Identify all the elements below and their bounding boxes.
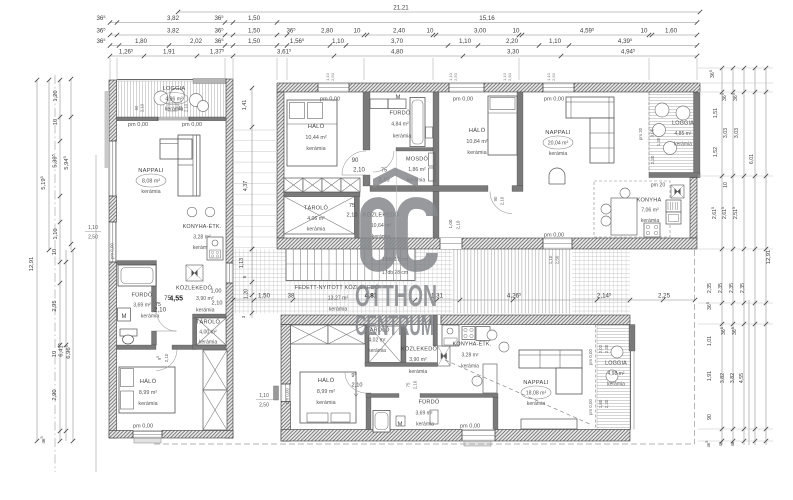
- svg-text:M: M: [398, 422, 403, 428]
- svg-text:pm 0,00: pm 0,00: [544, 97, 564, 103]
- svg-text:10,84 m²: 10,84 m²: [466, 139, 487, 145]
- svg-text:kerámia: kerámia: [138, 401, 157, 407]
- svg-text:1,91: 1,91: [163, 49, 176, 56]
- svg-text:pm 0,00: pm 0,00: [588, 349, 593, 365]
- svg-text:OTTHON: OTTHON: [355, 278, 437, 313]
- svg-text:2,30: 2,30: [604, 399, 609, 408]
- svg-text:2,10: 2,10: [347, 213, 358, 219]
- svg-text:HÁLÓ: HÁLÓ: [469, 127, 486, 134]
- svg-text:1,41: 1,41: [242, 100, 248, 111]
- svg-text:10: 10: [641, 28, 648, 35]
- svg-text:2,80: 2,80: [321, 28, 334, 35]
- svg-text:pm 0,00: pm 0,00: [133, 424, 153, 430]
- svg-text:2,50: 2,50: [88, 235, 98, 241]
- svg-text:3,69 m²: 3,69 m²: [133, 303, 151, 309]
- svg-text:2,95: 2,95: [52, 300, 58, 311]
- svg-text:2,35: 2,35: [740, 283, 746, 293]
- svg-text:1,80: 1,80: [135, 38, 148, 45]
- svg-text:1,51: 1,51: [713, 108, 719, 118]
- svg-text:1,00: 1,00: [211, 289, 222, 295]
- svg-text:LOGGIA: LOGGIA: [163, 86, 186, 92]
- svg-text:1,30: 1,30: [656, 137, 661, 146]
- svg-text:KONYHA-ÉTK.: KONYHA-ÉTK.: [183, 223, 222, 230]
- svg-text:4,55: 4,55: [169, 296, 183, 303]
- svg-text:kerámia: kerámia: [196, 308, 215, 314]
- svg-text:pm 20: pm 20: [638, 127, 643, 140]
- svg-text:3,82: 3,82: [167, 28, 180, 35]
- svg-text:1,265: 1,265: [119, 48, 133, 55]
- svg-text:KÖZLEKEDŐ: KÖZLEKEDŐ: [401, 346, 437, 353]
- svg-text:kerámia: kerámia: [461, 364, 479, 370]
- svg-text:NAPPALI: NAPPALI: [545, 130, 571, 136]
- svg-text:3,00: 3,00: [474, 28, 487, 35]
- svg-text:4,06 m²: 4,06 m²: [307, 216, 325, 222]
- svg-text:kerámia: kerámia: [307, 227, 326, 233]
- svg-text:kerámia: kerámia: [607, 382, 625, 388]
- svg-text:8,99 m²: 8,99 m²: [317, 389, 335, 395]
- svg-text:1,80: 1,80: [598, 399, 603, 408]
- svg-text:2,10: 2,10: [500, 196, 505, 205]
- svg-text:kerámia: kerámia: [416, 422, 434, 428]
- svg-text:2,10: 2,10: [456, 220, 461, 229]
- svg-text:1,50: 1,50: [248, 15, 261, 22]
- svg-text:kerámia: kerámia: [199, 340, 218, 346]
- svg-text:90: 90: [707, 414, 713, 420]
- svg-text:3,03: 3,03: [723, 128, 729, 138]
- svg-text:3,82: 3,82: [730, 373, 736, 383]
- svg-text:pm 0,00: pm 0,00: [588, 399, 593, 415]
- svg-text:12,91: 12,91: [766, 250, 772, 265]
- svg-text:3,615: 3,615: [277, 48, 291, 55]
- svg-text:HÁLÓ: HÁLÓ: [318, 377, 335, 384]
- svg-text:17db 28 cm: 17db 28 cm: [382, 270, 408, 276]
- svg-text:75: 75: [406, 382, 411, 387]
- svg-text:kerámia: kerámia: [409, 369, 428, 375]
- svg-text:2,145: 2,145: [597, 292, 611, 299]
- svg-text:2,10: 2,10: [413, 380, 418, 389]
- svg-text:kerámia: kerámia: [316, 400, 335, 406]
- svg-text:2,20: 2,20: [506, 38, 519, 45]
- svg-text:4,37: 4,37: [243, 181, 249, 192]
- svg-text:20,04 m²: 20,04 m²: [548, 141, 569, 147]
- svg-text:3,82: 3,82: [720, 373, 726, 383]
- svg-text:M: M: [396, 95, 401, 101]
- svg-text:3,90 m²: 3,90 m²: [409, 357, 427, 363]
- svg-text:4,945: 4,945: [621, 48, 635, 55]
- svg-text:HÁLÓ: HÁLÓ: [140, 378, 157, 385]
- svg-text:2,50: 2,50: [330, 72, 335, 81]
- svg-text:pm 20: pm 20: [651, 183, 666, 189]
- svg-text:pm 0,00: pm 0,00: [285, 388, 290, 404]
- svg-text:4,80: 4,80: [391, 49, 404, 56]
- svg-text:10: 10: [52, 351, 58, 357]
- svg-text:pm 0,00: pm 0,00: [182, 122, 202, 128]
- svg-text:2,40: 2,40: [393, 28, 406, 35]
- svg-text:1,375: 1,375: [210, 48, 224, 55]
- svg-text:TÁROLÓ: TÁROLÓ: [304, 205, 329, 212]
- svg-text:3,70: 3,70: [391, 38, 404, 45]
- svg-text:LOGGIA: LOGGIA: [605, 361, 627, 367]
- svg-text:KONYHA: KONYHA: [637, 198, 662, 204]
- svg-text:21,21: 21,21: [393, 5, 409, 12]
- svg-text:1,10: 1,10: [259, 393, 269, 399]
- svg-text:pm 0,00: pm 0,00: [544, 233, 564, 239]
- svg-text:kerámia: kerámia: [141, 189, 160, 195]
- svg-text:4,85 m²: 4,85 m²: [675, 131, 692, 137]
- svg-text:M: M: [122, 314, 127, 320]
- svg-text:2,50: 2,50: [507, 72, 512, 81]
- svg-text:46: 46: [730, 441, 735, 446]
- svg-text:10,44 m²: 10,44 m²: [305, 135, 326, 141]
- svg-text:kerámia: kerámia: [329, 307, 348, 313]
- svg-text:pm 0,00: pm 0,00: [110, 243, 115, 259]
- svg-text:NAPPALI: NAPPALI: [523, 380, 549, 386]
- svg-text:1,52: 1,52: [713, 147, 719, 157]
- svg-text:1,565: 1,565: [290, 38, 304, 45]
- svg-text:LOGGIA: LOGGIA: [672, 121, 694, 127]
- svg-text:1,86 m²: 1,86 m²: [408, 167, 426, 173]
- svg-text:1,50: 1,50: [258, 293, 271, 300]
- svg-text:10: 10: [52, 249, 58, 255]
- svg-text:1,20: 1,20: [53, 90, 59, 101]
- svg-text:4,96 m²: 4,96 m²: [165, 97, 183, 103]
- svg-text:KÖZLEKEDŐ: KÖZLEKEDŐ: [176, 285, 212, 292]
- svg-text:kerámia: kerámia: [549, 151, 568, 157]
- svg-text:1,10: 1,10: [332, 38, 345, 45]
- svg-text:2,50: 2,50: [453, 72, 458, 81]
- svg-text:4,84 m²: 4,84 m²: [391, 122, 409, 128]
- svg-text:1,13: 1,13: [239, 258, 245, 268]
- svg-text:2,50: 2,50: [555, 255, 560, 264]
- svg-text:10: 10: [723, 182, 729, 188]
- svg-text:1,01: 1,01: [707, 336, 713, 346]
- svg-text:18,08 m²: 18,08 m²: [526, 391, 547, 397]
- svg-text:kerámia: kerámia: [368, 348, 386, 354]
- svg-text:CENTRUM: CENTRUM: [355, 310, 434, 342]
- svg-text:4,55: 4,55: [739, 373, 745, 383]
- svg-text:2,02: 2,02: [598, 344, 603, 353]
- svg-text:1,50: 1,50: [248, 28, 261, 35]
- svg-text:90: 90: [352, 158, 359, 164]
- svg-text:pm 0,00: pm 0,00: [460, 424, 480, 430]
- svg-text:1,00: 1,00: [448, 219, 453, 228]
- svg-text:90: 90: [178, 105, 183, 110]
- svg-text:1,10: 1,10: [53, 228, 59, 239]
- svg-text:2,10: 2,10: [352, 383, 363, 389]
- svg-text:MOSDÓ: MOSDÓ: [406, 156, 429, 163]
- svg-text:FÜRDŐ: FÜRDŐ: [132, 292, 153, 299]
- svg-text:46: 46: [718, 441, 723, 446]
- svg-text:HÁLÓ: HÁLÓ: [308, 123, 325, 130]
- svg-text:TÁROLÓ: TÁROLÓ: [196, 319, 221, 326]
- svg-text:15,16: 15,16: [479, 15, 495, 22]
- svg-text:2,50: 2,50: [259, 403, 269, 409]
- svg-text:8,08 m²: 8,08 m²: [142, 179, 160, 185]
- svg-text:3,82: 3,82: [167, 15, 180, 22]
- svg-text:kerámia: kerámia: [527, 401, 546, 407]
- svg-text:2,10: 2,10: [212, 301, 223, 307]
- svg-text:KONYHA-ÉTK.: KONYHA-ÉTK.: [453, 341, 492, 348]
- svg-text:1,10: 1,10: [88, 225, 98, 231]
- svg-text:2,90: 2,90: [52, 389, 58, 400]
- svg-text:6,01: 6,01: [749, 154, 755, 164]
- svg-text:2,30: 2,30: [604, 344, 609, 353]
- svg-text:4,395: 4,395: [618, 38, 632, 45]
- svg-text:2,10: 2,10: [353, 168, 365, 174]
- svg-text:2,10: 2,10: [164, 353, 169, 362]
- svg-text:2,30: 2,30: [650, 155, 655, 164]
- svg-text:pm 0,00: pm 0,00: [453, 97, 473, 103]
- svg-text:4,00 m²: 4,00 m²: [199, 330, 217, 336]
- svg-text:12,91: 12,91: [29, 257, 35, 272]
- svg-text:13,27 m²: 13,27 m²: [328, 296, 349, 302]
- svg-text:kerámia: kerámia: [467, 150, 486, 156]
- svg-text:1,10: 1,10: [548, 255, 553, 264]
- svg-text:2,35: 2,35: [707, 283, 713, 293]
- svg-text:1,10: 1,10: [549, 38, 562, 45]
- svg-text:1,20: 1,20: [244, 289, 250, 299]
- svg-text:75: 75: [155, 302, 161, 308]
- svg-text:NAPPALI: NAPPALI: [138, 168, 164, 174]
- svg-text:2,10: 2,10: [140, 103, 145, 112]
- svg-text:1,60: 1,60: [665, 28, 678, 35]
- svg-text:4,595: 4,595: [580, 27, 594, 34]
- svg-text:pm 0,00: pm 0,00: [320, 97, 340, 103]
- svg-text:kerámia: kerámia: [393, 134, 412, 140]
- svg-text:10: 10: [513, 28, 520, 35]
- svg-text:10: 10: [354, 28, 361, 35]
- svg-text:2,10: 2,10: [184, 103, 189, 112]
- svg-text:1,50: 1,50: [248, 38, 261, 45]
- svg-text:1,10: 1,10: [459, 38, 472, 45]
- svg-text:2,02: 2,02: [190, 38, 203, 45]
- svg-text:75: 75: [349, 203, 355, 209]
- svg-text:1,91: 1,91: [707, 371, 713, 381]
- svg-text:3,30: 3,30: [507, 49, 520, 56]
- svg-text:2,25: 2,25: [658, 293, 671, 300]
- svg-text:3,03: 3,03: [734, 128, 740, 138]
- svg-text:3,00: 3,00: [650, 128, 655, 137]
- svg-text:8,99 m²: 8,99 m²: [139, 390, 157, 396]
- svg-text:2,35: 2,35: [729, 283, 735, 293]
- svg-text:kerámia: kerámia: [674, 142, 692, 148]
- svg-text:90: 90: [493, 196, 498, 201]
- svg-text:2,35: 2,35: [718, 283, 724, 293]
- svg-text:90: 90: [134, 105, 139, 110]
- svg-text:3,28 m²: 3,28 m²: [462, 353, 479, 359]
- svg-text:FÜRDŐ: FÜRDŐ: [419, 399, 440, 406]
- svg-text:kerámia: kerámia: [306, 146, 325, 152]
- svg-text:10: 10: [53, 119, 59, 125]
- svg-text:4,98 m²: 4,98 m²: [608, 371, 625, 377]
- svg-text:3,69 m²: 3,69 m²: [416, 411, 433, 417]
- svg-text:7,06 m²: 7,06 m²: [641, 208, 659, 214]
- svg-text:FÜRDŐ: FÜRDŐ: [390, 110, 411, 117]
- svg-text:38: 38: [288, 293, 295, 300]
- svg-text:2,50: 2,50: [551, 72, 556, 81]
- svg-text:4,265: 4,265: [507, 292, 521, 299]
- svg-text:pm 0,00: pm 0,00: [128, 122, 148, 128]
- svg-text:10: 10: [427, 28, 434, 35]
